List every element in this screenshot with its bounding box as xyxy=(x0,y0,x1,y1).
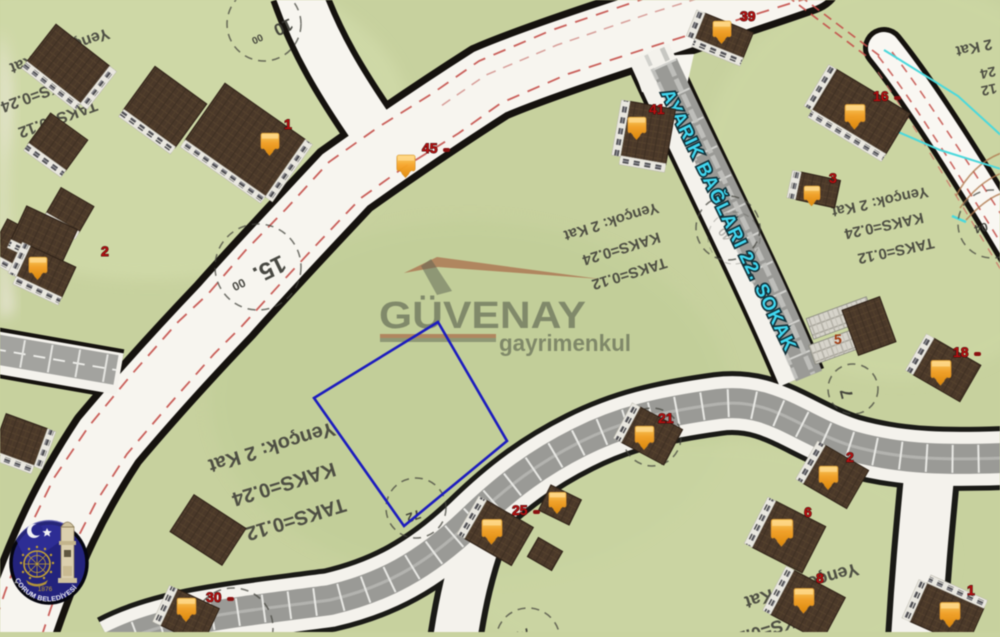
svg-text:5: 5 xyxy=(834,331,842,347)
svg-text:1: 1 xyxy=(967,582,975,598)
svg-text:25: 25 xyxy=(512,502,528,518)
svg-text:gayrimenkul: gayrimenkul xyxy=(499,330,631,356)
svg-text:2: 2 xyxy=(101,243,109,259)
svg-text:30: 30 xyxy=(206,589,222,605)
svg-text:18: 18 xyxy=(953,344,969,360)
svg-text:3: 3 xyxy=(829,170,837,186)
svg-text:8: 8 xyxy=(816,570,824,586)
svg-text:39: 39 xyxy=(740,8,756,24)
svg-text:21: 21 xyxy=(658,410,674,426)
svg-text:2: 2 xyxy=(846,449,854,465)
svg-text:6: 6 xyxy=(804,504,812,520)
svg-text:16: 16 xyxy=(873,88,889,104)
svg-text:1: 1 xyxy=(284,116,292,132)
svg-text:45: 45 xyxy=(422,140,438,156)
svg-text:41: 41 xyxy=(649,101,665,117)
svg-text:1876: 1876 xyxy=(38,586,53,593)
